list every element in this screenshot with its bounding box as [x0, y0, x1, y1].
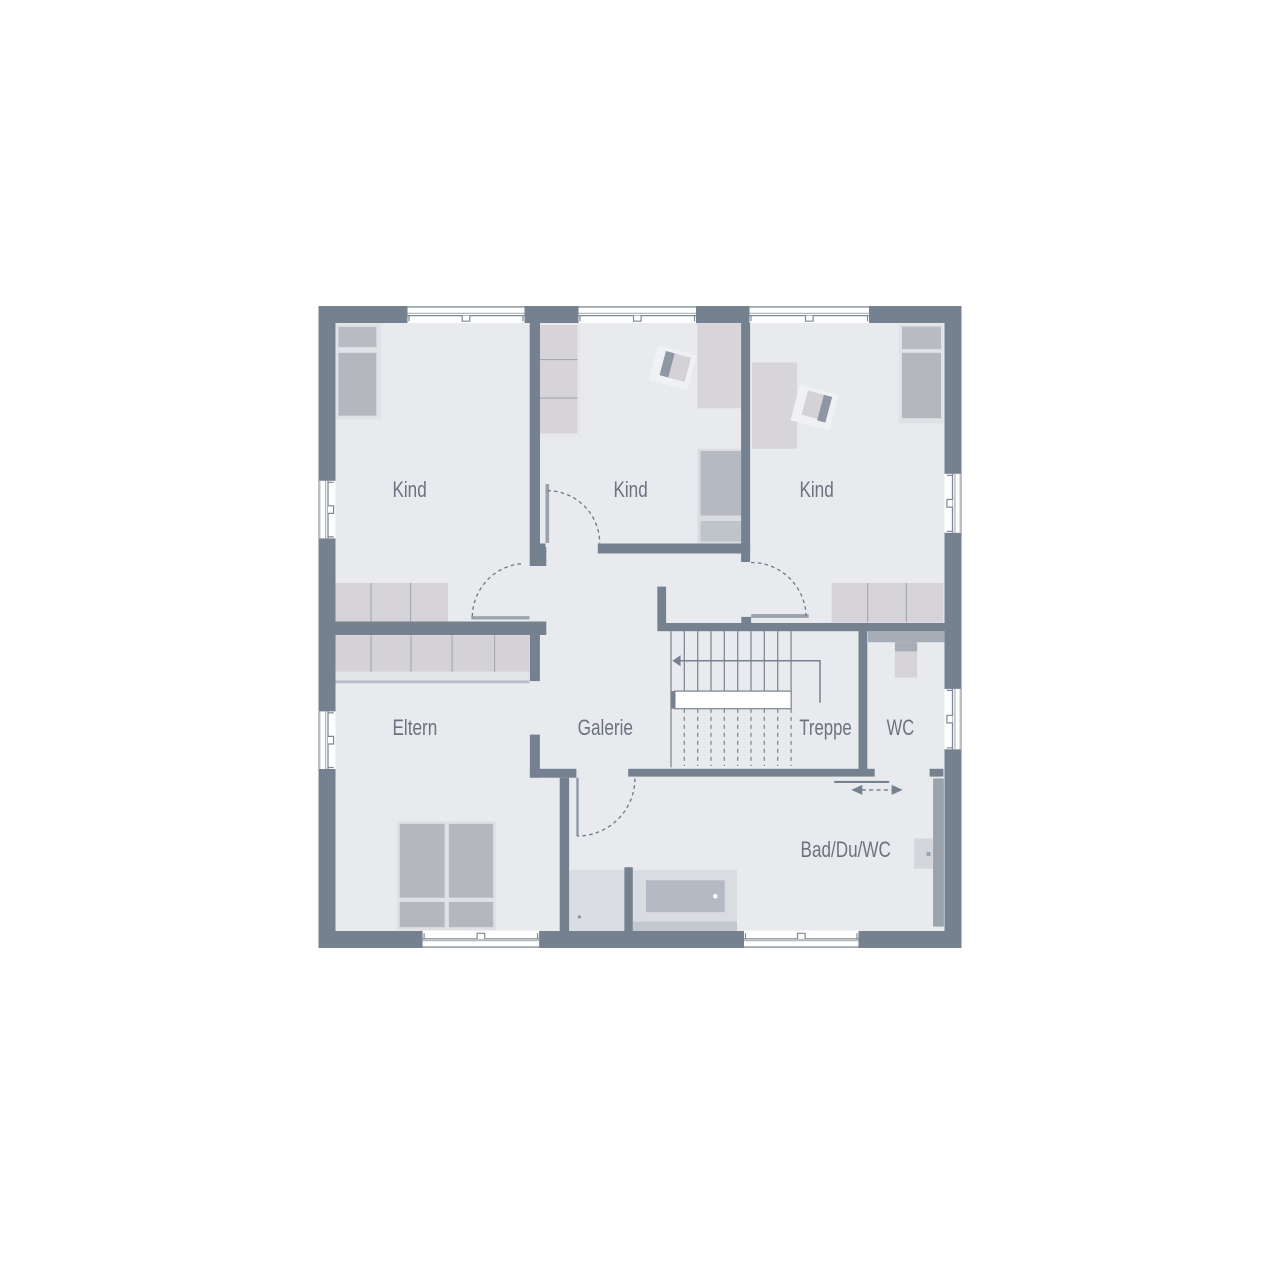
svg-text:Bad/Du/WC: Bad/Du/WC	[801, 837, 891, 862]
svg-text:Galerie: Galerie	[578, 715, 633, 740]
svg-text:WC: WC	[887, 715, 915, 740]
svg-text:Treppe: Treppe	[799, 715, 852, 740]
svg-text:Kind: Kind	[392, 477, 426, 502]
svg-text:Eltern: Eltern	[393, 715, 438, 740]
svg-text:Kind: Kind	[613, 477, 647, 502]
svg-text:Kind: Kind	[799, 477, 833, 502]
